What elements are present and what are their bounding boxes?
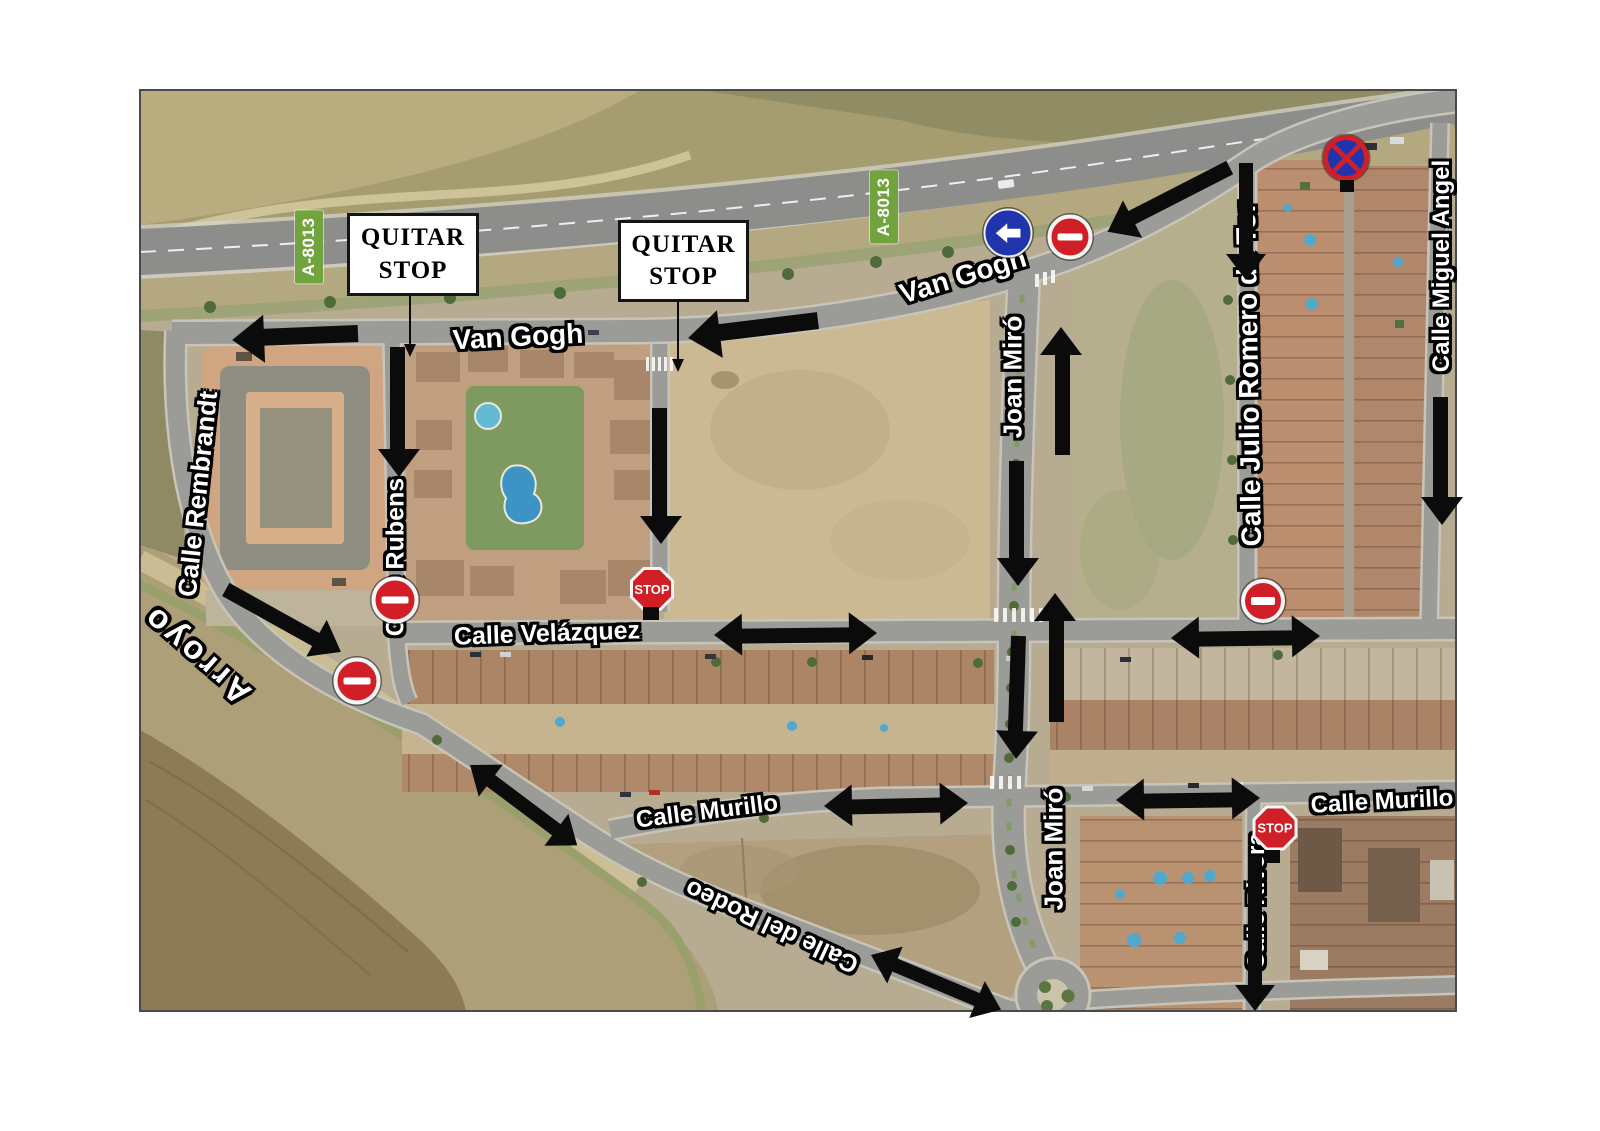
traffic-plan-map: Van GoghVan GoghCalle RembrandtCalle Rub… — [0, 0, 1600, 1131]
satellite-map-image — [0, 0, 1600, 1131]
